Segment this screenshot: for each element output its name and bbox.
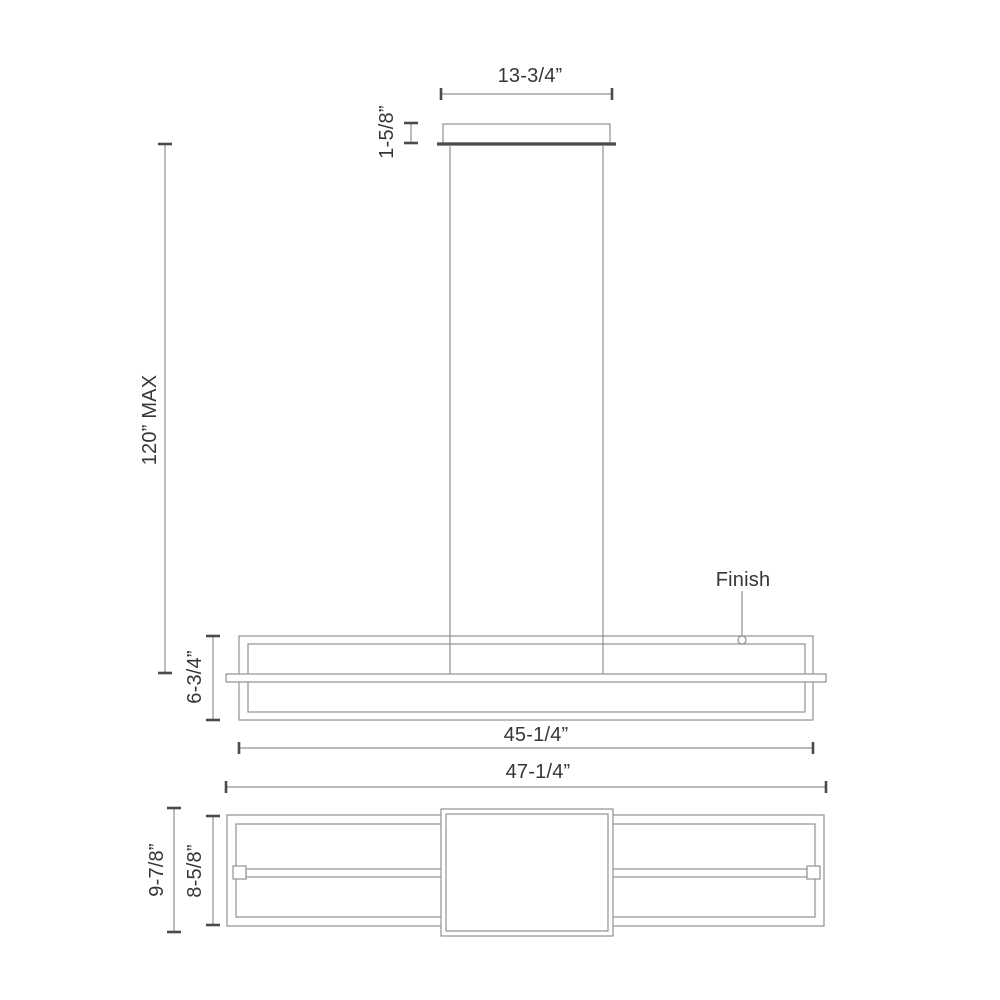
spec-sheet-page: 13-3/4” 1-5/8” 120” MAX 6-3/4” Finish 45… xyxy=(0,0,1000,1000)
dim-suspension-max-label: 120” MAX xyxy=(140,375,160,466)
dim-plan-overall-depth-label: 9-7/8” xyxy=(147,843,167,896)
dim-plan-frame-depth-label: 8-5/8” xyxy=(185,844,205,897)
dim-canopy-height-label: 1-5/8” xyxy=(377,105,397,158)
suspension-cables xyxy=(450,145,603,676)
dim-canopy-width xyxy=(441,88,612,100)
finish-callout-label: Finish xyxy=(716,570,771,590)
plan-bar-endcap-right xyxy=(807,866,820,879)
dim-overall-width-label: 47-1/4” xyxy=(506,762,571,782)
ceiling-canopy xyxy=(437,124,616,144)
canopy-body xyxy=(443,124,610,143)
dim-canopy-height xyxy=(404,123,418,143)
fixture-plan-view xyxy=(227,809,824,936)
fixture-side-view xyxy=(226,636,826,720)
dim-plan-overall-depth xyxy=(167,808,181,932)
plan-driver-box xyxy=(441,809,613,936)
plan-bar-endcap-left xyxy=(233,866,246,879)
light-bar xyxy=(226,674,826,682)
dim-canopy-width-label: 13-3/4” xyxy=(498,66,563,86)
dim-plan-frame-depth xyxy=(206,816,220,925)
dim-fixture-height-label: 6-3/4” xyxy=(185,650,205,703)
finish-point-icon xyxy=(738,636,746,644)
dim-fixture-height xyxy=(206,636,220,720)
dim-fixture-width-label: 45-1/4” xyxy=(504,725,569,745)
